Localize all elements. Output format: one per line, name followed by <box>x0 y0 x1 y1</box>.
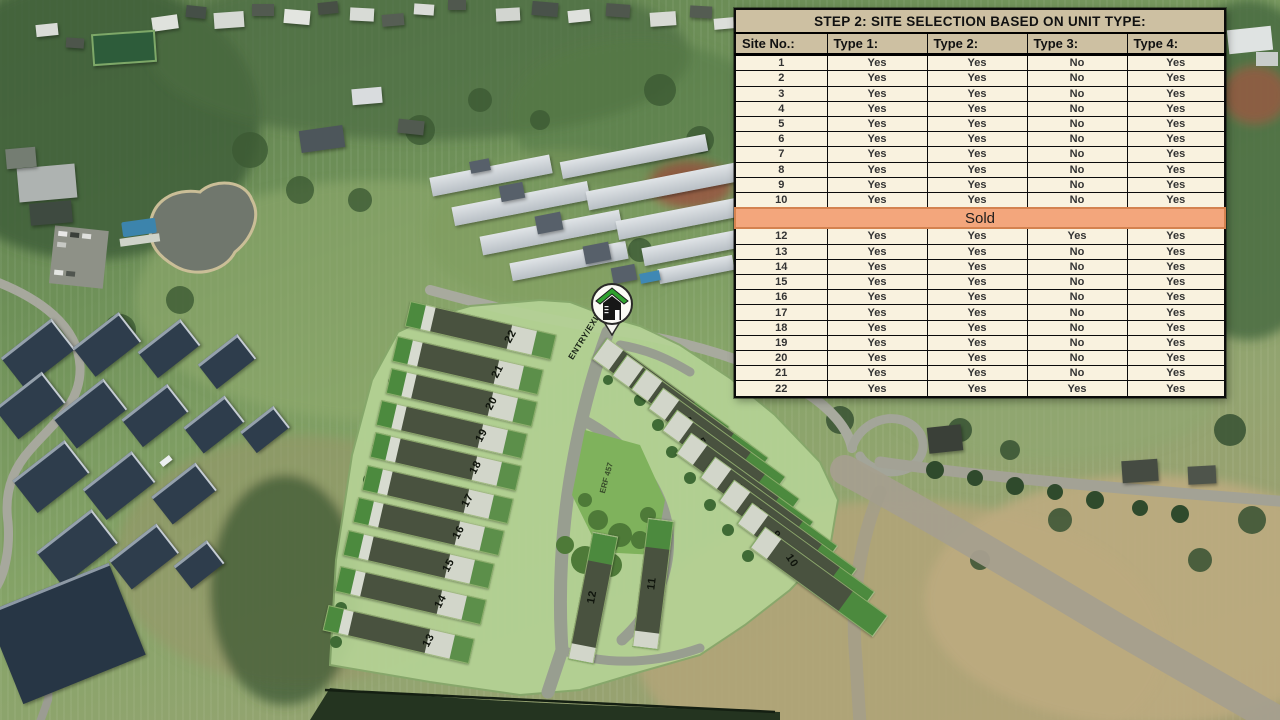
table-cell: Yes <box>927 228 1027 244</box>
table-cell: Yes <box>827 71 927 86</box>
lot-number: 15 <box>440 557 457 574</box>
column-header: Type 3: <box>1027 33 1127 55</box>
table-cell: 20 <box>735 351 827 366</box>
table-cell: No <box>1027 177 1127 192</box>
table-cell: 7 <box>735 147 827 162</box>
lot-number: 20 <box>483 395 500 412</box>
table-cell: No <box>1027 116 1127 131</box>
table-cell: Yes <box>1127 86 1225 101</box>
table-cell: 12 <box>735 228 827 244</box>
lot-number: 12 <box>585 590 599 605</box>
table-row: 15YesYesNoYes <box>735 275 1225 290</box>
table-cell: No <box>1027 305 1127 320</box>
column-header: Type 1: <box>827 33 927 55</box>
table-row: 3YesYesNoYes <box>735 86 1225 101</box>
table-row: 13YesYesNoYes <box>735 244 1225 259</box>
table-cell: Yes <box>927 55 1027 71</box>
table-cell: Yes <box>827 147 927 162</box>
table-cell: Yes <box>827 320 927 335</box>
table-cell: Yes <box>1127 335 1225 350</box>
table-cell: 19 <box>735 335 827 350</box>
table-cell: Yes <box>1127 275 1225 290</box>
column-header: Type 2: <box>927 33 1027 55</box>
lot-number: 22 <box>502 328 519 345</box>
house-logo-icon <box>589 282 635 336</box>
table-row: 18YesYesNoYes <box>735 320 1225 335</box>
lot-number: 17 <box>459 492 476 509</box>
developer-logo-pin <box>589 282 635 341</box>
table-cell: Yes <box>827 366 927 381</box>
table-row: 12YesYesYesYes <box>735 228 1225 244</box>
table-cell: No <box>1027 55 1127 71</box>
table-cell: Yes <box>1127 320 1225 335</box>
table-cell: 3 <box>735 86 827 101</box>
table-cell: 13 <box>735 244 827 259</box>
table-cell: Yes <box>1127 162 1225 177</box>
table-cell: No <box>1027 259 1127 274</box>
lot-number: 18 <box>467 459 484 476</box>
table-cell: Yes <box>827 162 927 177</box>
table-cell: Yes <box>827 132 927 147</box>
table-cell: Yes <box>927 86 1027 101</box>
table-cell: 4 <box>735 101 827 116</box>
table-cell: 15 <box>735 275 827 290</box>
table-cell: Yes <box>1127 116 1225 131</box>
table-cell: 16 <box>735 290 827 305</box>
table-cell: Yes <box>1127 55 1225 71</box>
table-cell: Yes <box>827 177 927 192</box>
table-cell: Yes <box>827 259 927 274</box>
table-row: 9YesYesNoYes <box>735 177 1225 192</box>
table-cell: Yes <box>1127 244 1225 259</box>
lot-number: 16 <box>450 524 467 541</box>
table-cell: Yes <box>927 381 1027 397</box>
table-cell: Yes <box>927 101 1027 116</box>
table-cell: No <box>1027 71 1127 86</box>
table-cell: Yes <box>827 335 927 350</box>
lot-number: 13 <box>420 632 437 649</box>
table-row: 5YesYesNoYes <box>735 116 1225 131</box>
table-cell: No <box>1027 290 1127 305</box>
table-cell: Yes <box>927 305 1027 320</box>
table-cell: 10 <box>735 193 827 209</box>
site-selection-table: STEP 2: SITE SELECTION BASED ON UNIT TYP… <box>734 8 1226 398</box>
lot-number: 11 <box>645 577 658 591</box>
table-row: 14YesYesNoYes <box>735 259 1225 274</box>
table-cell: Yes <box>827 381 927 397</box>
table-cell: Yes <box>1127 305 1225 320</box>
table-cell: Yes <box>827 193 927 209</box>
table-cell: No <box>1027 101 1127 116</box>
table-cell: Yes <box>827 55 927 71</box>
lot-number: 10 <box>783 552 800 570</box>
table-cell: 18 <box>735 320 827 335</box>
table-cell: Yes <box>927 162 1027 177</box>
table-cell: Yes <box>827 116 927 131</box>
table-row: 2YesYesNoYes <box>735 71 1225 86</box>
lot-number: 21 <box>489 363 506 380</box>
table-row: 16YesYesNoYes <box>735 290 1225 305</box>
table-cell: Yes <box>827 275 927 290</box>
table-cell: 8 <box>735 162 827 177</box>
table-header-row: Site No.:Type 1:Type 2:Type 3:Type 4: <box>735 33 1225 55</box>
table-cell: 6 <box>735 132 827 147</box>
table-row: 7YesYesNoYes <box>735 147 1225 162</box>
table-row: Sold <box>735 208 1225 228</box>
table-row: 6YesYesNoYes <box>735 132 1225 147</box>
table-row: 4YesYesNoYes <box>735 101 1225 116</box>
table-row: 10YesYesNoYes <box>735 193 1225 209</box>
table-cell: Yes <box>1127 351 1225 366</box>
table-cell: Yes <box>927 290 1027 305</box>
table-cell: 22 <box>735 381 827 397</box>
table-cell: Yes <box>1127 101 1225 116</box>
table-cell: Yes <box>827 244 927 259</box>
table-cell: Yes <box>927 116 1027 131</box>
table-cell: Yes <box>927 320 1027 335</box>
table-cell: No <box>1027 320 1127 335</box>
presentation-slide: 12345678910111213141516171819202122 ENTR… <box>0 0 1280 720</box>
table-cell: Yes <box>1127 132 1225 147</box>
table-cell: No <box>1027 86 1127 101</box>
table-cell: Yes <box>927 244 1027 259</box>
table-cell: Yes <box>1127 228 1225 244</box>
table-cell: Yes <box>827 86 927 101</box>
table-cell: No <box>1027 366 1127 381</box>
table-cell: 1 <box>735 55 827 71</box>
table-cell: No <box>1027 162 1127 177</box>
table-cell: 21 <box>735 366 827 381</box>
table-cell: No <box>1027 132 1127 147</box>
table-cell: Yes <box>927 71 1027 86</box>
table-cell: No <box>1027 275 1127 290</box>
table-cell: Yes <box>1127 366 1225 381</box>
table-cell: Yes <box>927 259 1027 274</box>
table-cell: No <box>1027 147 1127 162</box>
sold-row-cell: Sold <box>735 208 1225 228</box>
table-cell: 5 <box>735 116 827 131</box>
table-cell: Yes <box>827 305 927 320</box>
table-cell: No <box>1027 351 1127 366</box>
table-title-row: STEP 2: SITE SELECTION BASED ON UNIT TYP… <box>735 9 1225 33</box>
table-cell: Yes <box>827 290 927 305</box>
table-row: 22YesYesYesYes <box>735 381 1225 397</box>
table-row: 1YesYesNoYes <box>735 55 1225 71</box>
table-row: 21YesYesNoYes <box>735 366 1225 381</box>
table-row: 8YesYesNoYes <box>735 162 1225 177</box>
column-header: Type 4: <box>1127 33 1225 55</box>
table-cell: Yes <box>1127 259 1225 274</box>
lot-number: 14 <box>432 593 449 610</box>
table-row: 17YesYesNoYes <box>735 305 1225 320</box>
table-cell: Yes <box>1027 228 1127 244</box>
table-cell: Yes <box>827 101 927 116</box>
table-cell: Yes <box>827 228 927 244</box>
table-cell: Yes <box>927 335 1027 350</box>
table-cell: No <box>1027 335 1127 350</box>
table-cell: Yes <box>1127 193 1225 209</box>
table-cell: Yes <box>1127 381 1225 397</box>
table-title: STEP 2: SITE SELECTION BASED ON UNIT TYP… <box>735 9 1225 33</box>
table-cell: Yes <box>927 193 1027 209</box>
table-row: 19YesYesNoYes <box>735 335 1225 350</box>
table-cell: 17 <box>735 305 827 320</box>
table-cell: Yes <box>927 177 1027 192</box>
table-cell: Yes <box>1127 177 1225 192</box>
table-cell: Yes <box>927 275 1027 290</box>
table-cell: Yes <box>927 366 1027 381</box>
table-cell: 14 <box>735 259 827 274</box>
column-header: Site No.: <box>735 33 827 55</box>
table-cell: Yes <box>927 132 1027 147</box>
table-cell: 9 <box>735 177 827 192</box>
table-cell: Yes <box>927 351 1027 366</box>
table-cell: 2 <box>735 71 827 86</box>
table-cell: No <box>1027 244 1127 259</box>
table-cell: Yes <box>827 351 927 366</box>
lot-number: 19 <box>473 427 490 444</box>
table-cell: Yes <box>1127 290 1225 305</box>
table-cell: Yes <box>1027 381 1127 397</box>
table-cell: Yes <box>1127 147 1225 162</box>
table-cell: Yes <box>1127 71 1225 86</box>
table-row: 20YesYesNoYes <box>735 351 1225 366</box>
table-cell: No <box>1027 193 1127 209</box>
table-cell: Yes <box>927 147 1027 162</box>
